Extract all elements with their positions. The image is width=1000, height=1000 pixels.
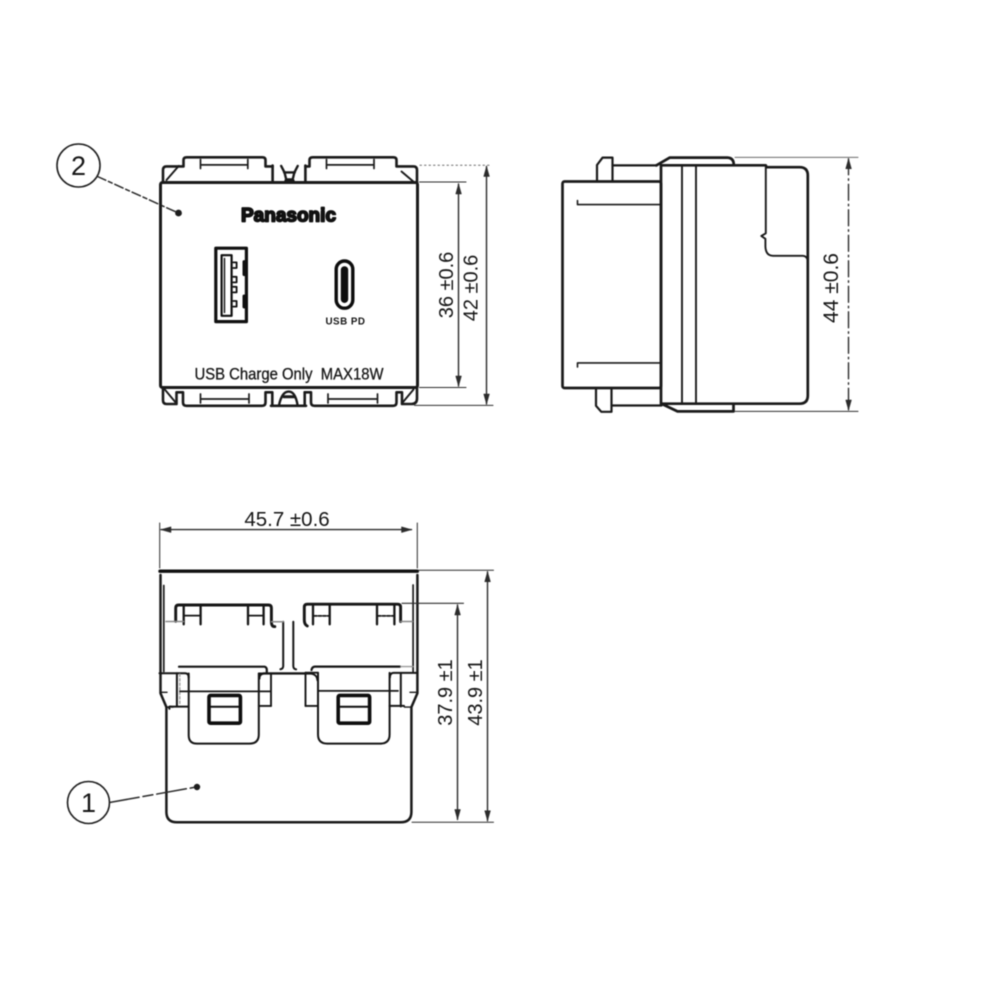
svg-text:USB Charge Only MAX18W: USB Charge Only MAX18W (195, 366, 385, 384)
svg-text:42 ±0.6: 42 ±0.6 (461, 255, 483, 322)
svg-text:1: 1 (81, 788, 96, 818)
svg-text:2: 2 (71, 151, 86, 181)
svg-text:36 ±0.6: 36 ±0.6 (436, 252, 458, 319)
svg-text:44 ±0.6: 44 ±0.6 (820, 253, 843, 323)
svg-text:Panasonic: Panasonic (241, 206, 336, 227)
svg-text:USB PD: USB PD (325, 317, 365, 328)
svg-text:45.7 ±0.6: 45.7 ±0.6 (244, 508, 329, 531)
svg-text:37.9 ±1: 37.9 ±1 (435, 659, 457, 726)
svg-text:43.9 ±1: 43.9 ±1 (465, 659, 487, 726)
